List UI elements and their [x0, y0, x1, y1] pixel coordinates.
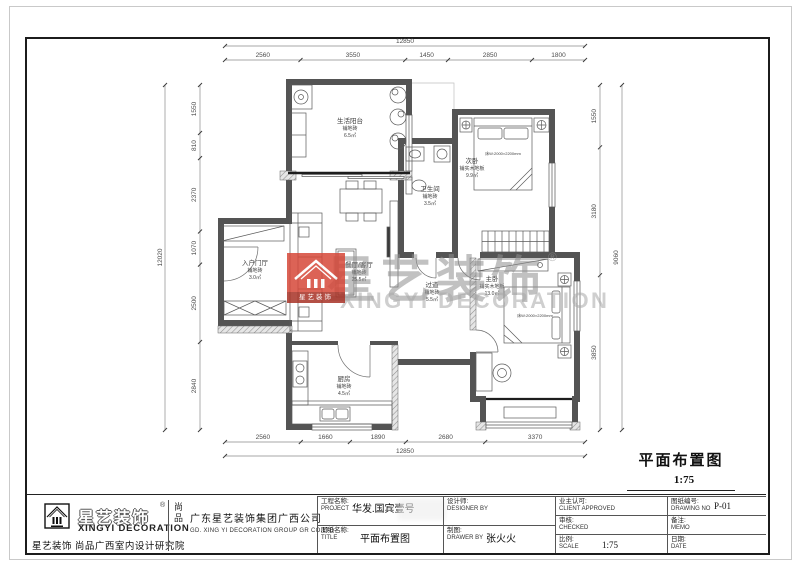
company-logo-registered-icon: ® [160, 502, 165, 509]
bath-area: 3.5㎡ [424, 200, 436, 207]
designer-label-en: DESIGNER BY [447, 506, 552, 513]
titleblock-divider [168, 500, 169, 551]
client-label: 业主认可: [559, 498, 664, 506]
dim-right-seg0: 1550 [591, 109, 598, 124]
room-label-balcony: 生活阳台 铺地砖 6.5㎡ [337, 116, 363, 139]
dim-left-total: 12020 [157, 248, 164, 266]
company-name-cn: 广东星艺装饰集团广西公司 [190, 510, 322, 525]
dim-right-seg1: 3180 [591, 204, 598, 219]
dim-right-seg2: 3850 [591, 345, 598, 360]
client-label-en: CLIENT APPROVED [559, 506, 664, 513]
watermark-logo-text: 星艺装饰 [287, 292, 345, 303]
checked-label: 审核: [559, 517, 664, 525]
dim-bottom-seg0: 2560 [256, 434, 271, 441]
shangpin-label: 尚品 [172, 502, 185, 536]
plan-title-text: 平面布置图 [638, 453, 723, 469]
checked-label-en: CHECKED [559, 525, 664, 532]
balcony-floor: 铺地砖 [342, 125, 357, 132]
designer-label: 设计师: [447, 498, 552, 506]
drawing-sheet: 12850 2560 3550 1450 2850 1800 2560 1660… [0, 0, 800, 565]
entry-floor: 铺地砖 [247, 267, 262, 274]
cell-checked: 审核: CHECKED [555, 515, 667, 534]
bath-floor: 铺地砖 [422, 193, 437, 200]
room-label-entry: 入户门厅 铺地砖 3.0㎡ [242, 258, 269, 281]
redacted-smudge [398, 499, 446, 520]
balcony-area: 6.5㎡ [344, 132, 356, 139]
entry-area: 3.0㎡ [249, 274, 261, 281]
cell-designer: 设计师: DESIGNER BY [443, 496, 555, 525]
cell-memo: 备注: MEMO [667, 515, 766, 534]
kitchen-area: 4.5㎡ [338, 390, 350, 397]
dim-left-seg2: 2370 [191, 187, 198, 202]
dim-top-seg4: 1800 [551, 52, 566, 59]
date-label-en: DATE [671, 544, 763, 551]
dim-bottom-total: 12850 [396, 448, 414, 455]
watermark-logo: 星艺装饰 [287, 253, 345, 303]
watermark-en-text: XINGYI DECORATION [340, 288, 609, 314]
dim-top-seg0: 2560 [256, 52, 271, 59]
dim-left-seg0: 1550 [191, 101, 198, 116]
bath-name: 卫生间 [420, 184, 440, 193]
plan-title-underline [627, 490, 735, 495]
date-label: 日期: [671, 536, 763, 544]
memo-label-en: MEMO [671, 525, 763, 532]
dim-bottom-seg3: 2680 [438, 434, 453, 441]
memo-label: 备注: [671, 517, 763, 525]
dim-top-seg1: 3550 [346, 52, 361, 59]
bedroom2-area: 9.9㎡ [466, 172, 478, 179]
company-caption: 星艺装饰 尚品广西室内设计研究院 [32, 538, 185, 552]
watermark-house-icon [287, 253, 345, 292]
watermark-registered-icon: ® [548, 250, 557, 264]
drawer-value: 张火火 [486, 534, 516, 546]
balcony-name: 生活阳台 [337, 116, 363, 125]
company-logo-icon [44, 503, 70, 529]
dim-bottom-seg1: 1660 [318, 434, 333, 441]
plan-title: 平面布置图 1:75 [627, 449, 735, 495]
kitchen-floor: 铺地砖 [336, 383, 351, 390]
dim-top-seg2: 1450 [419, 52, 434, 59]
drawing-no-value: P-01 [714, 501, 731, 512]
room-label-bath: 卫生间 铺地砖 3.5㎡ [420, 184, 440, 207]
plan-title-scale: 1:75 [674, 474, 694, 486]
company-name-en: GD. XING YI DECORATION GROUP GR CO.LTD [190, 528, 334, 534]
cell-sheet-title: 图纸名称: TITLE 平面布置图 [317, 525, 443, 553]
kitchen-name: 厨房 [338, 374, 351, 383]
sheet-value: 平面布置图 [360, 534, 410, 546]
dim-bottom-seg2: 1890 [371, 434, 386, 441]
cell-date: 日期: DATE [667, 534, 766, 553]
dim-left-seg1: 810 [191, 140, 198, 151]
dim-top-total: 12850 [396, 38, 414, 45]
bedroom2-name: 次卧 [466, 156, 480, 165]
cell-scale: 比例: SCALE 1:75 [555, 534, 667, 553]
dim-left-seg5: 2840 [191, 378, 198, 393]
dim-bottom-seg4: 3370 [528, 434, 543, 441]
dim-left-seg3: 1070 [191, 240, 198, 255]
cell-drawing-no: 图纸编号: DRAWING NO P-01 [667, 496, 766, 515]
entry-name: 入户门厅 [242, 258, 269, 267]
bedroom2-floor: 铺实木地板 [459, 165, 484, 172]
dim-right-total: 9060 [613, 250, 620, 265]
scale-value: 1:75 [602, 540, 618, 551]
dim-left-seg4: 2500 [191, 296, 198, 311]
room-label-kitchen: 厨房 铺地砖 4.5㎡ [336, 374, 351, 397]
cell-client-approved: 业主认可: CLIENT APPROVED [555, 496, 667, 515]
dim-top-seg3: 2850 [483, 52, 498, 59]
cell-drawer: 制图: DRAWER BY 张火火 [443, 525, 555, 553]
bedroom2-bed-label: 床W:2000×2200mm [485, 150, 521, 156]
